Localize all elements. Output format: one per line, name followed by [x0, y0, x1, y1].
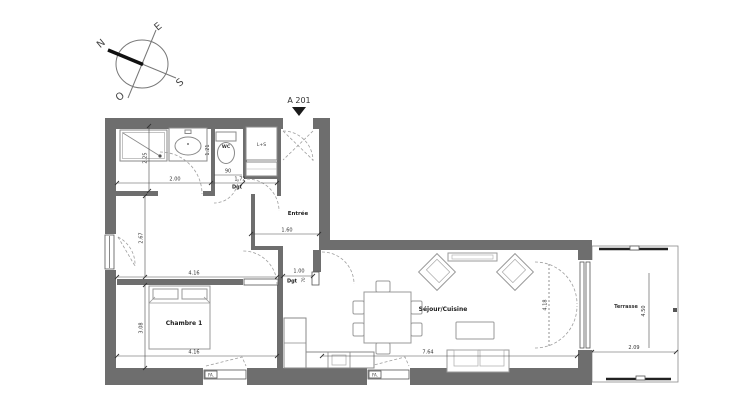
dim-passage-width: 1.00	[293, 269, 304, 275]
dim-passage-depth: 70	[301, 277, 306, 283]
dgt-hall-label: Dgt	[232, 185, 243, 191]
unit-label: A 201	[287, 96, 310, 105]
dim-sejour-width: 7.64	[422, 350, 433, 356]
entrance-door	[283, 116, 313, 161]
dim-upper-room-width: 4.16	[188, 271, 199, 277]
dining-table-set	[353, 281, 422, 354]
dim-wc-depth: 1.21	[205, 144, 211, 155]
dgt-passage-label: Dgt	[287, 279, 298, 285]
terrace-label: Terrasse	[614, 304, 638, 310]
compass-n: N	[95, 37, 108, 50]
coffee-table	[456, 322, 494, 339]
wc-door-swing	[214, 179, 238, 203]
chambre-door-leaf	[244, 279, 278, 285]
sofa	[447, 350, 509, 372]
dim-sejour-door-height: 4.18	[543, 299, 549, 310]
closet-label: L+S	[257, 142, 266, 148]
terrace-depth-dimension: 4.50	[641, 305, 647, 316]
dim-wc-width: 90	[225, 169, 231, 175]
compass-s: S	[174, 77, 186, 90]
bathroom-fixtures: WC L+S	[120, 127, 277, 176]
dim-entree-width: 1.60	[281, 228, 292, 234]
entrance-marker-icon	[292, 107, 306, 116]
floor-plan-page: Terrasse 4.50 2.09 FA.	[0, 0, 750, 420]
compass-o: O	[114, 90, 127, 104]
terrace-width-dimension: 2.09	[628, 345, 639, 351]
unit-title-group: A 201	[287, 96, 310, 116]
dining-table	[364, 292, 411, 343]
dim-bath-depth: 2.25	[143, 152, 149, 163]
dim-hall-length: 1.72	[234, 177, 245, 183]
floor-plan-drawing: Terrasse 4.50 2.09 FA.	[0, 0, 750, 420]
bed	[149, 286, 210, 349]
dim-chambre-depth: 3.08	[139, 322, 145, 333]
dim-bath-width: 2.00	[169, 177, 180, 183]
window-chambre-label: FA.	[208, 373, 214, 378]
sideboard	[448, 253, 497, 261]
armchair-right	[497, 254, 534, 291]
window-sejour-label: FA.	[372, 373, 378, 378]
laundry-closet: L+S	[246, 127, 277, 176]
dim-chambre-width: 4.16	[188, 350, 199, 356]
dim-upper-room-depth: 2.67	[139, 232, 145, 243]
compass-e: E	[152, 21, 164, 33]
sejour-label: Séjour/Cuisine	[419, 306, 468, 313]
compass-rose-icon: N E S O	[95, 21, 186, 104]
wc-label: WC	[222, 144, 231, 150]
chambre-label: Chambre 1	[166, 320, 203, 327]
toilet: WC	[216, 132, 236, 164]
terrace-area: Terrasse 4.50 2.09	[590, 246, 678, 382]
passage-door-leaf	[312, 272, 319, 285]
entree-label: Entrée	[288, 210, 309, 217]
window-left	[103, 234, 135, 270]
window-chambre: FA.	[203, 357, 247, 385]
passage-door-swing	[322, 252, 354, 284]
washbasin	[169, 128, 207, 161]
